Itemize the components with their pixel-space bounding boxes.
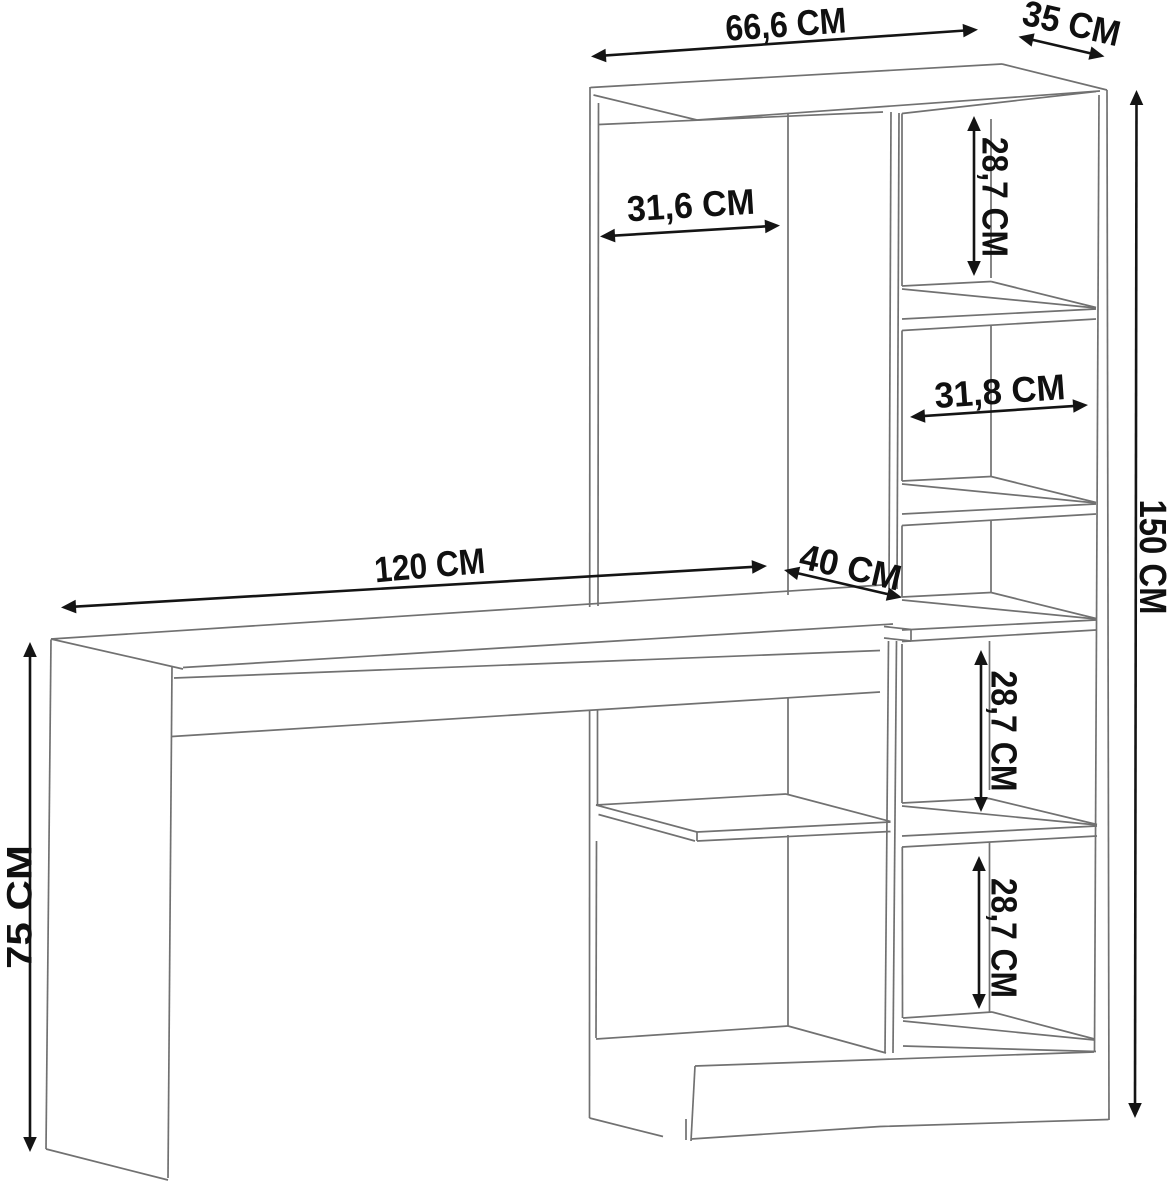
svg-text:28,7 CM: 28,7 CM [983, 878, 1024, 998]
svg-text:150 CM: 150 CM [1131, 500, 1168, 615]
svg-text:28,7 CM: 28,7 CM [983, 671, 1024, 792]
svg-text:75 CM: 75 CM [0, 845, 39, 969]
svg-text:28,7 CM: 28,7 CM [974, 137, 1015, 257]
svg-text:66,6 CM: 66,6 CM [724, 0, 848, 49]
svg-text:31,6 CM: 31,6 CM [626, 181, 756, 230]
